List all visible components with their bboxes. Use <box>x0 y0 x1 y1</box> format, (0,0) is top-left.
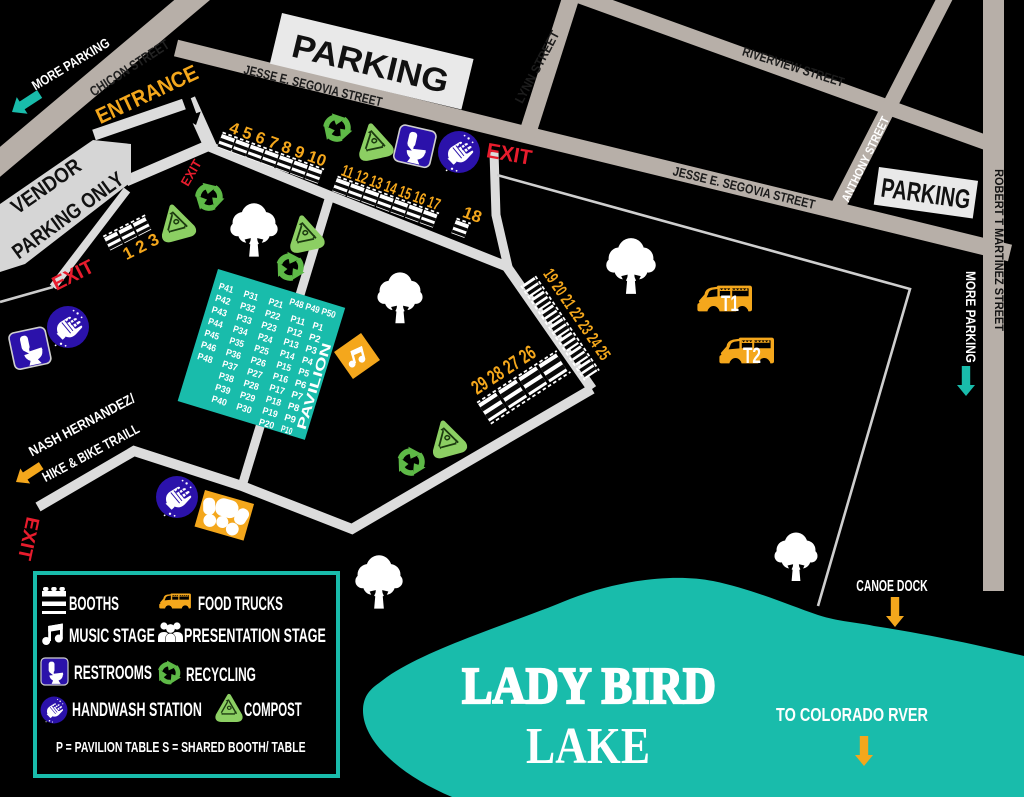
svg-text:BOOTHS: BOOTHS <box>69 594 119 614</box>
svg-text:T1: T1 <box>721 292 739 316</box>
svg-text:CANOE DOCK: CANOE DOCK <box>856 577 928 595</box>
svg-text:PRESENTATION STAGE: PRESENTATION STAGE <box>184 625 326 646</box>
svg-text:COMPOST: COMPOST <box>244 700 302 721</box>
svg-text:LADY BIRD: LADY BIRD <box>462 656 716 714</box>
svg-text:LAKE: LAKE <box>526 718 650 775</box>
svg-text:HANDWASH STATION: HANDWASH STATION <box>72 699 202 720</box>
svg-text:P = PAVILION TABLE S = SHARE: P = PAVILION TABLE S = SHARED BOOTH/ TAB… <box>56 738 306 755</box>
svg-text:TO COLORADO RVER: TO COLORADO RVER <box>776 706 928 726</box>
svg-text:ROBERT T MARTINEZ STREET: ROBERT T MARTINEZ STREET <box>992 169 1004 331</box>
svg-text:MORE PARKING: MORE PARKING <box>963 271 979 363</box>
svg-text:RECYCLING: RECYCLING <box>186 665 256 685</box>
svg-text:FOOD TRUCKS: FOOD TRUCKS <box>198 594 283 615</box>
svg-text:RESTROOMS: RESTROOMS <box>74 663 152 683</box>
svg-text:MUSIC STAGE: MUSIC STAGE <box>69 625 155 646</box>
svg-text:T2: T2 <box>743 344 761 368</box>
